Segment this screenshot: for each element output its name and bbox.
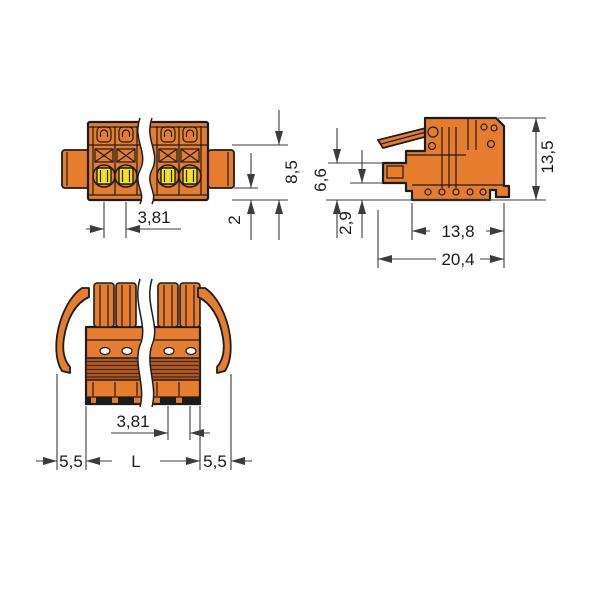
front-right-tab bbox=[208, 150, 234, 188]
dim-label-lever-left: 5,5 bbox=[59, 452, 83, 471]
side-connector-body bbox=[378, 118, 509, 200]
dim-label-front-flange: 2 bbox=[225, 215, 244, 224]
dim-label-lever-right: 5,5 bbox=[203, 452, 227, 471]
dim-label-front-height: 8,5 bbox=[282, 160, 301, 184]
connector-dimension-drawing: 3,81 8,5 2 bbox=[0, 0, 600, 600]
drawing-canvas: 3,81 8,5 2 bbox=[0, 0, 600, 600]
front-view: 3,81 8,5 2 bbox=[62, 110, 301, 240]
dim-label-side-plug-height: 6,6 bbox=[311, 168, 330, 192]
side-housing bbox=[383, 118, 509, 200]
bottom-view: 3,81 5,5 L 5,5 bbox=[36, 279, 252, 471]
dim-label-bottom-pitch: 3,81 bbox=[116, 412, 149, 431]
front-left-tab bbox=[62, 150, 90, 188]
bottom-connector-body bbox=[56, 279, 231, 407]
dim-label-side-clearance: 2,9 bbox=[336, 211, 355, 235]
side-view: 13,5 6,6 2,9 13,8 20,4 bbox=[311, 118, 557, 269]
dim-label-length: L bbox=[131, 452, 140, 471]
dim-label-side-depth: 13,8 bbox=[441, 222, 474, 241]
locking-lever-left bbox=[56, 288, 89, 373]
dim-label-side-overall-depth: 20,4 bbox=[441, 250, 474, 269]
locking-lever-right bbox=[198, 288, 231, 373]
page: { "drawing": { "type": "technical-dimens… bbox=[0, 0, 600, 600]
front-connector-body bbox=[62, 118, 234, 204]
dim-label-side-height: 13,5 bbox=[538, 140, 557, 173]
dim-label-front-pitch: 3,81 bbox=[137, 208, 170, 227]
